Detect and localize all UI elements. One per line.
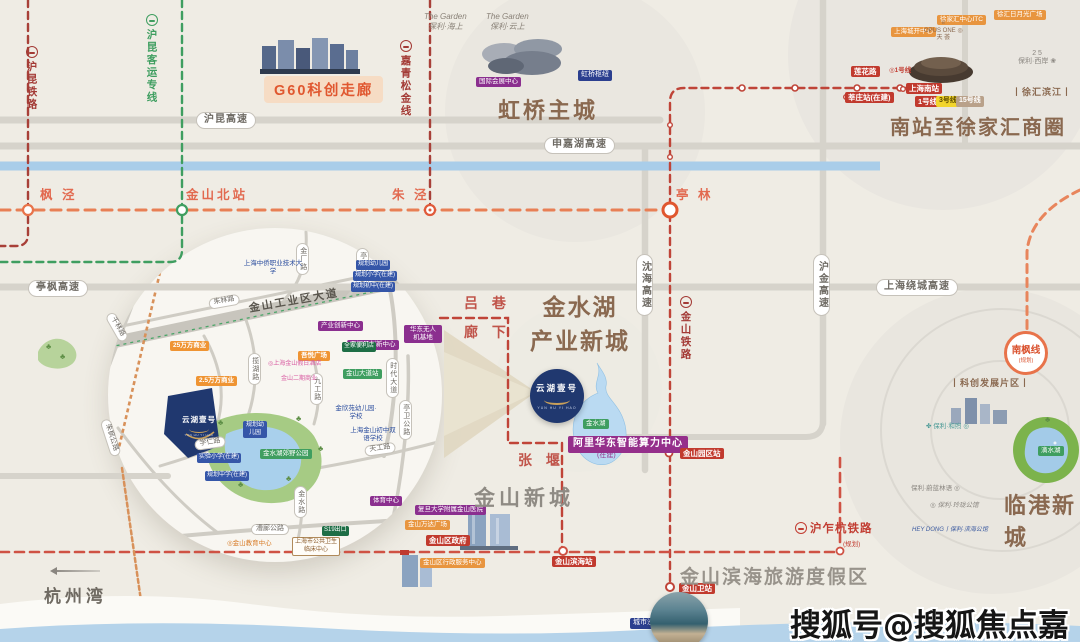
tree-icon: ♣ (296, 414, 301, 424)
poi-badge-wanda-plaza: 金山万达广场 (405, 520, 450, 530)
poi-label-zhongqiao-college: 上海中侨职业技术大学 (241, 260, 305, 276)
region-title-binhai-resort: 金山滨海旅游度假区 (680, 562, 869, 589)
poi-label-bilingual-school: 上海金山初中双语学校 (350, 427, 396, 443)
train-icon (795, 522, 807, 534)
crescent-arc-icon (544, 395, 570, 405)
rail-label-hukun-railway: 沪昆铁路 (24, 46, 40, 111)
crescent-arc-icon (189, 425, 209, 433)
region-title-lingang: 临港新城 (1004, 488, 1080, 552)
poi-badge-familymart: 全家便利店 (342, 342, 376, 352)
station-label-fengjing: 枫 泾 (40, 184, 77, 203)
jinshuihu-line2: 产业新城 (520, 322, 640, 356)
project-logo-inset: 云湖壹号 YUN HU YI HAO (176, 414, 222, 437)
train-icon (680, 296, 692, 308)
rail-label-text: 沪昆铁路 (25, 61, 40, 111)
shanghai-south-station-image (906, 50, 976, 84)
poi-label-holiday-inn: ◎上海金山假日酒店 (268, 361, 321, 369)
region-title-hongqiao: 虹桥主城 (498, 93, 598, 125)
road-label-hukun-expwy: 沪昆高速 (196, 112, 256, 129)
opus-one-logo: ♕ OPUS ONE ◎ 天 荟 (924, 20, 963, 43)
poi-badge-junior-2: 规划初中(在建) (351, 282, 395, 292)
map-canvas: 云湖壹号 YUN HU YI HAO 云湖壹号 YUN HU YI HAO (0, 0, 1080, 642)
poi-badge-primary-2: 规划小学(在建) (353, 271, 397, 281)
station-label-tinglin: 亭 林 (676, 184, 713, 203)
metro-line15-badge: 15号线 (956, 96, 984, 107)
rail-label-huzhahang: 沪乍杭铁路 (795, 520, 873, 536)
road-label-lanhu-rd: 揽湖路 (248, 353, 261, 385)
poi-badge-primary-school: 实验小学(在建) (197, 453, 241, 463)
poi-badge-ali-computing-center: 阿里华东智能算力中心 (568, 436, 688, 453)
district-label-langxia: 廊 下 (464, 322, 511, 342)
poi-badge-wuyue-plaza: 吾悦广场 (298, 351, 330, 361)
poi-label-jinxinyuan-school: 金欣苑幼儿园·学校 (335, 405, 377, 421)
poi-label-education-center: ◎金山教育中心 (227, 540, 272, 548)
poi-badge-expo-center: 国际会展中心 (476, 77, 521, 87)
tree-icon: ♣ (318, 444, 323, 454)
poi-badge-commercial-2-5: 2.5万方商业 (196, 376, 237, 386)
tower-image (394, 548, 444, 590)
poi-badge-riyueguang: 徐汇日月光广场 (994, 10, 1046, 20)
poi-badge-sports-center: 体育中心 (370, 496, 402, 506)
project-logo-main: 云湖壹号 YUN HU YI HAO (530, 369, 584, 423)
region-title-nanzhan: 南站至徐家汇商圈 (890, 111, 1066, 140)
poi-badge-public-health-center: 上海市公共卫生临床中心 (292, 537, 340, 556)
rail-label-text: 金山铁路 (679, 311, 694, 361)
station-label-zhujing: 朱 泾 (392, 184, 429, 203)
rail-label-text: 沪乍杭铁路 (810, 520, 873, 536)
nanfeng-line-sub: (规划) (1019, 356, 1034, 364)
road-label-hujin-expwy: 沪金高速 (813, 254, 830, 316)
metro-line1-tag: ◎1号线 (889, 67, 911, 75)
rail-label-jqsj: 嘉青松金线 (398, 40, 414, 118)
road-label-jinshui-rd: 金水路 (294, 486, 307, 518)
project-name-en: YUN HU YI HAO (537, 406, 576, 410)
rail-label-jinshan-railway: 金山铁路 (678, 296, 694, 361)
poi-badge-country-park: 金水湖郊野公园 (260, 449, 312, 459)
lake-label-jinshui: 金水湖 (583, 419, 609, 429)
g60-buildings-image (260, 32, 364, 76)
poly-project-logo-2: ◎ 保利·玲珑公馆 (930, 502, 979, 510)
hongqiao-station-image (476, 36, 572, 78)
poi-label-phase2-commercial: 金山二期商业 (281, 376, 317, 384)
road-label-shenjiahu-expwy: 申嘉湖高速 (544, 137, 615, 154)
rail-label-text: 沪昆客运专线 (145, 29, 160, 104)
project-name-en: YUN HU YI HAO (176, 433, 222, 437)
region-title-jinshan-newtown: 金山新城 (474, 482, 574, 512)
station-badge-jinshan-park: 金山园区站 (680, 448, 724, 459)
district-label-lvxiang: 吕 巷 (464, 293, 511, 313)
station-badge-jinshan-ave: 金山大道站 (343, 369, 382, 379)
road-label-tingfeng-expwy: 亭枫高速 (28, 280, 88, 297)
poly-project-logo-1: 保利·蔚蓝林语 ◎ (911, 485, 960, 493)
district-label-zhangyan: 张 堰 (518, 450, 565, 470)
tree-icon: ♣ (46, 342, 51, 352)
poi-badge-ali-sub: (在建) (597, 452, 616, 461)
city-beach-photo (650, 592, 708, 642)
train-icon (400, 40, 412, 52)
jinshuihu-line1: 金水湖 (520, 288, 640, 322)
poi-badge-planned-kindergarten: 规划幼儿园 (243, 421, 267, 438)
rail-label-huzhahang-sub: (规划) (843, 538, 860, 548)
poi-badge-admin-center: 金山区行政服务中心 (420, 558, 485, 568)
station-label-jinshanbei: 金山北站 (186, 184, 248, 203)
g60-corridor-label: G60科创走廊 (264, 76, 383, 103)
poly-garden-logo-1: The Garden 保利·海上 (424, 12, 467, 31)
watermark: 搜狐号@搜狐焦点嘉峪关站 (790, 600, 1080, 642)
label-kechuang-zone: 丨科创发展片区丨 (950, 376, 1030, 389)
station-badge-jinshan-binhai: 金山滨海站 (552, 556, 596, 567)
project-name: 云湖壹号 (536, 382, 578, 394)
station-badge-xinzhuang: 莘庄站(在建) (845, 92, 894, 103)
label-xuhui-binjiang: 丨徐汇滨江丨 (1012, 85, 1072, 98)
road-label-caolang-hwy: 漕廊公路 (251, 524, 289, 535)
rail-label-hukun-hsr: 沪昆客运专线 (144, 14, 160, 104)
poly-project-logo-3: HEY DONG丨保利·滨海公馆 (912, 527, 988, 535)
road-label-raocheng-expwy: 上海绕城高速 (876, 279, 958, 296)
poi-badge-drone-base: 华东无人机基地 (404, 325, 442, 343)
poi-badge-industry-innovation: 产业创新中心 (318, 321, 363, 331)
rail-label-text: 嘉青松金线 (399, 55, 414, 118)
nanfeng-line-name: 南枫线 (1012, 342, 1041, 356)
train-icon (146, 14, 158, 26)
train-icon (26, 46, 38, 58)
poi-badge-district-gov: 金山区政府 (426, 535, 470, 546)
region-title-hangzhou-bay: 杭州湾 (44, 582, 107, 607)
poly-project-logo-4: ✤ 保利·和煦 ◎ (926, 423, 969, 431)
tree-icon: ♣ (60, 352, 65, 362)
west-arrow-icon (52, 570, 100, 572)
poi-badge-commercial-25: 25万方商业 (170, 341, 209, 351)
project-name: 云湖壹号 (176, 414, 222, 425)
tree-icon: ♣ (286, 474, 291, 484)
road-label-tingwei-hwy: 亭卫公路 (399, 400, 412, 440)
station-badge-south-railway: 上海南站 (906, 83, 942, 94)
nanfeng-line-terminal: 南枫线 (规划) (1004, 331, 1048, 375)
poly-garden-logo-2: The Garden 保利·云上 (486, 12, 529, 31)
station-badge-lianhua-rd: 莲花路 (851, 66, 880, 77)
lake-label-dishui: 滴水湖 (1038, 446, 1064, 456)
tree-icon: ♣ (1045, 415, 1050, 425)
poi-badge-s19-exit: S19出口 (322, 526, 349, 536)
poi-badge-kindergarten-2: 规划幼儿园 (356, 260, 390, 270)
tree-icon: ♣ (238, 480, 243, 490)
poly-west-bund-logo: 2 5 保利·西岸 ❀ (1018, 50, 1056, 67)
road-label-shidai-ave: 时代大道 (386, 358, 399, 398)
poi-badge-hongqiao-hub: 虹桥枢纽 (578, 70, 612, 81)
region-title-jinshuihu: 金水湖 产业新城 (520, 288, 640, 356)
